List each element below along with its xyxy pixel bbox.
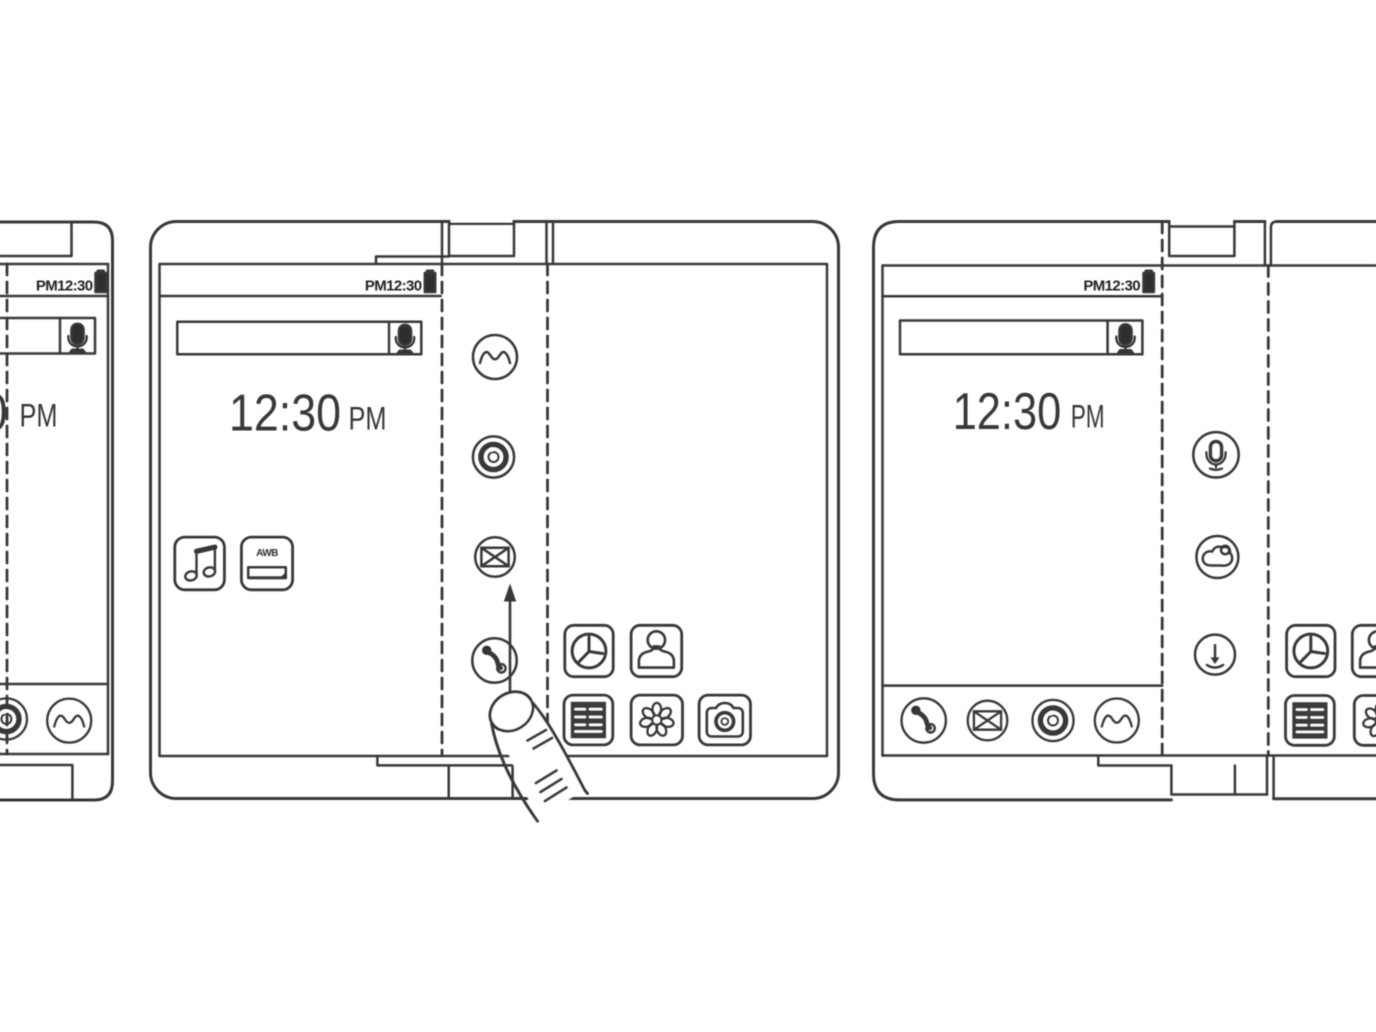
svg-text:PM12:30: PM12:30 bbox=[365, 278, 422, 295]
svg-text:PM: PM bbox=[20, 398, 58, 434]
svg-text:12:30: 12:30 bbox=[953, 383, 1061, 441]
svg-text:PM12:30: PM12:30 bbox=[36, 278, 93, 295]
svg-text:PM: PM bbox=[349, 401, 387, 437]
svg-text:PM12:30: PM12:30 bbox=[1083, 278, 1140, 295]
svg-text:PM: PM bbox=[1071, 399, 1105, 435]
svg-text:12:30: 12:30 bbox=[0, 384, 8, 442]
svg-text:12:30: 12:30 bbox=[229, 385, 341, 443]
